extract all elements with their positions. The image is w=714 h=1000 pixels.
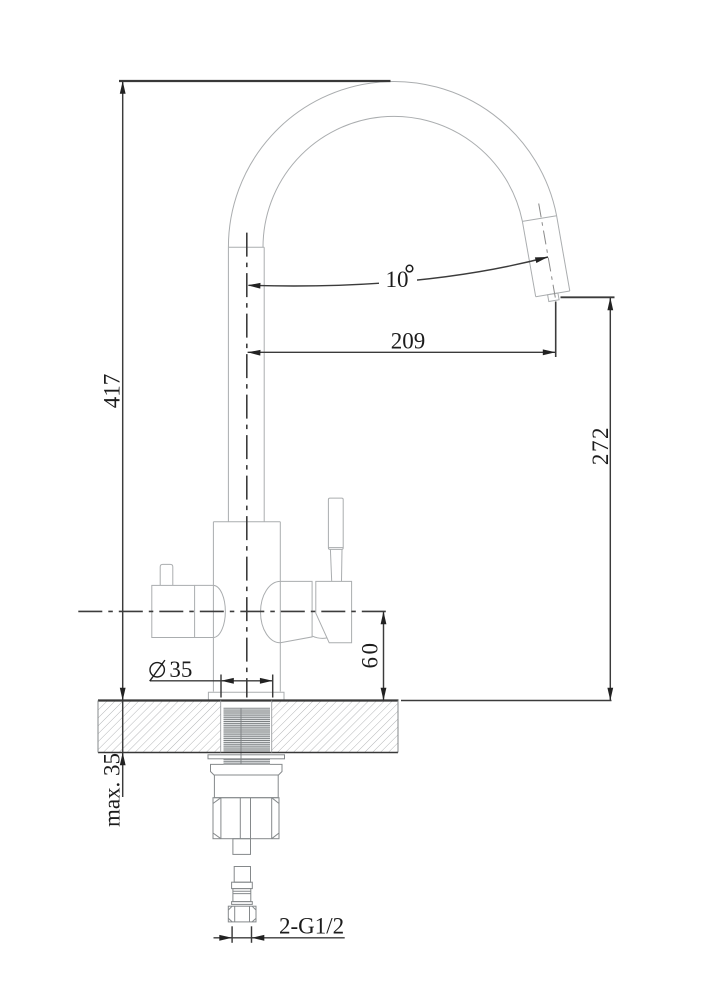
svg-text:10: 10 (386, 267, 409, 292)
svg-text:417: 417 (100, 374, 125, 409)
svg-text:35: 35 (169, 657, 192, 682)
svg-text:60: 60 (358, 641, 383, 669)
svg-text:272: 272 (588, 426, 613, 465)
svg-text:209: 209 (391, 329, 426, 354)
svg-text:2-G1/2: 2-G1/2 (279, 914, 344, 939)
svg-text:max. 35: max. 35 (100, 753, 125, 827)
